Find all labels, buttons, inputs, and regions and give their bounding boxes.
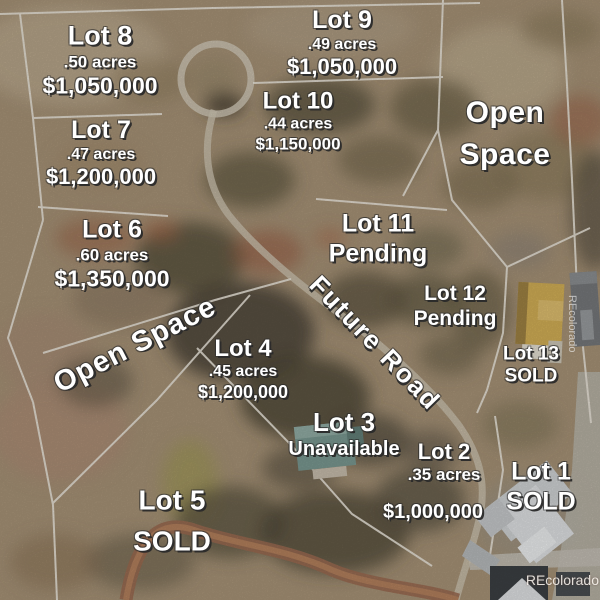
lot-3-label: Lot 3 Unavailable [288, 407, 399, 461]
lot-1-label: Lot 1 SOLD [506, 458, 575, 517]
watermark-bottom-right: REcolorado [526, 572, 599, 588]
lot-acreage: .50 acres [42, 52, 157, 72]
lot-price: $1,150,000 [255, 135, 340, 155]
open-space-label-top-right: Open Space [435, 92, 575, 176]
lot-5-label: Lot 5 SOLD [133, 480, 211, 561]
lot-4-label: Lot 4 .45 acres $1,200,000 [198, 335, 288, 403]
lot-8-label: Lot 8 .50 acres $1,050,000 [42, 20, 157, 99]
lot-acreage: .60 acres [54, 245, 169, 265]
lot-13-label: Lot 13 SOLD [503, 344, 559, 389]
lot-price: $1,200,000 [46, 164, 156, 190]
lot-acreage: .35 acres [405, 465, 483, 485]
lot-name: Lot 13 [503, 344, 559, 366]
lot-name: Lot 10 [255, 87, 340, 115]
lot-name: Lot 11 [329, 210, 428, 240]
lot-acreage: .44 acres [255, 116, 340, 135]
lot-status: Pending [329, 239, 428, 269]
lot-price: $1,050,000 [287, 54, 397, 80]
lot-price: $1,000,000 [383, 501, 483, 525]
lot-name: Lot 9 [287, 6, 397, 36]
lot-11-label: Lot 11 Pending [329, 210, 428, 269]
lot-6-label: Lot 6 .60 acres $1,350,000 [54, 216, 169, 293]
lot-status: Pending [414, 307, 497, 332]
lot-2-label: Lot 2 .35 acres $1,000,000 [405, 439, 483, 525]
lot-status: SOLD [503, 366, 559, 388]
lot-status: SOLD [133, 521, 211, 562]
watermark-right-edge: REcolorado [566, 295, 578, 352]
lot-name: Lot 7 [46, 116, 156, 146]
lot-name: Lot 5 [133, 480, 211, 521]
lot-10-label: Lot 10 .44 acres $1,150,000 [255, 87, 340, 154]
lot-price: $1,200,000 [198, 382, 288, 403]
aerial-lot-map: Lot 8 .50 acres $1,050,000 Lot 9 .49 acr… [0, 0, 600, 600]
lot-price: $1,050,000 [42, 72, 157, 99]
lot-name: Lot 3 [288, 407, 399, 438]
lot-12-label: Lot 12 Pending [414, 282, 497, 332]
lot-name: Lot 4 [198, 335, 288, 363]
lot-status: SOLD [506, 487, 575, 517]
lot-acreage: .47 acres [46, 145, 156, 164]
lot-name: Lot 2 [405, 439, 483, 465]
lot-name: Lot 12 [414, 282, 497, 307]
lot-acreage: .45 acres [198, 363, 288, 382]
lot-price: $1,350,000 [54, 265, 169, 292]
lot-7-label: Lot 7 .47 acres $1,200,000 [46, 116, 156, 190]
lot-name: Lot 8 [42, 20, 157, 52]
lot-name: Lot 6 [54, 216, 169, 246]
lot-acreage: .49 acres [287, 35, 397, 54]
lot-status: Unavailable [288, 438, 399, 462]
lot-name: Lot 1 [506, 458, 575, 488]
lot-9-label: Lot 9 .49 acres $1,050,000 [287, 6, 397, 80]
